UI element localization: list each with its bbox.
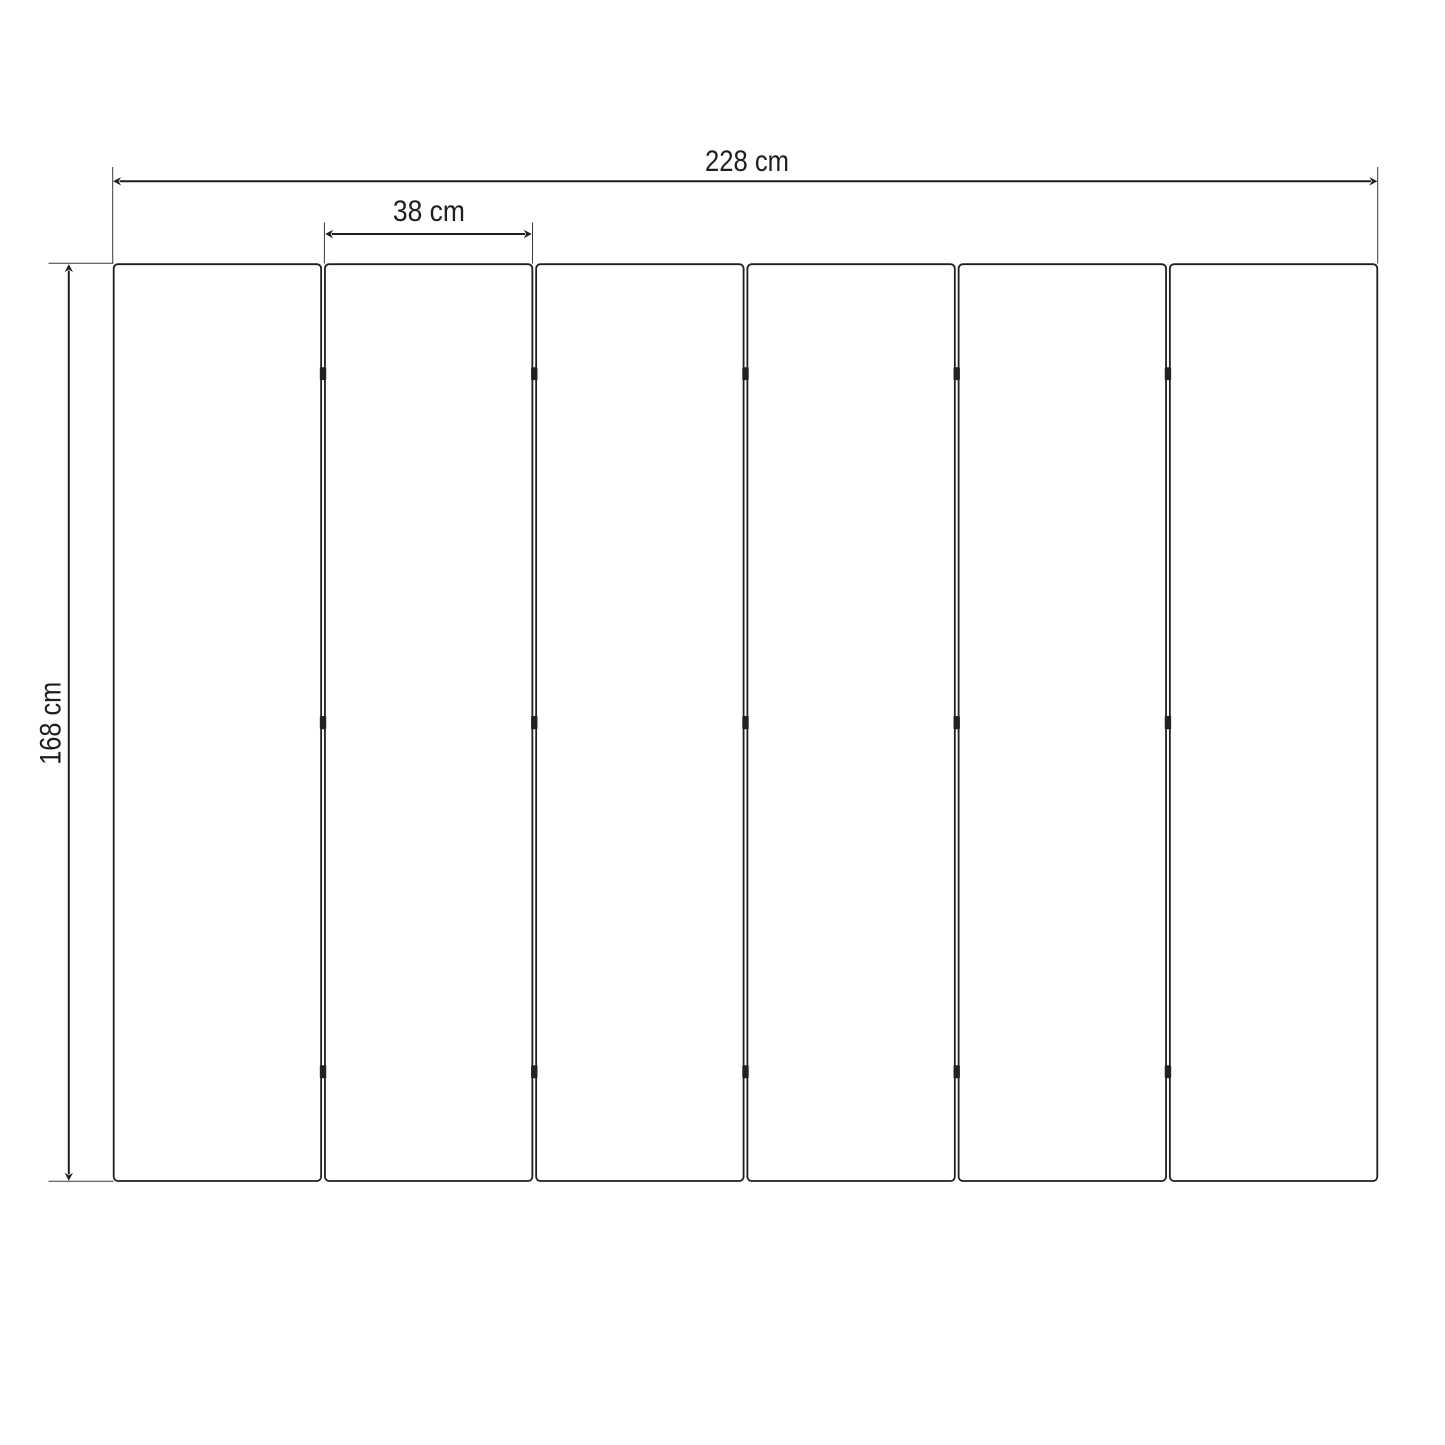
svg-text:38 cm: 38 cm [393,195,465,228]
svg-text:168 cm: 168 cm [34,682,67,765]
svg-text:228 cm: 228 cm [705,145,789,178]
